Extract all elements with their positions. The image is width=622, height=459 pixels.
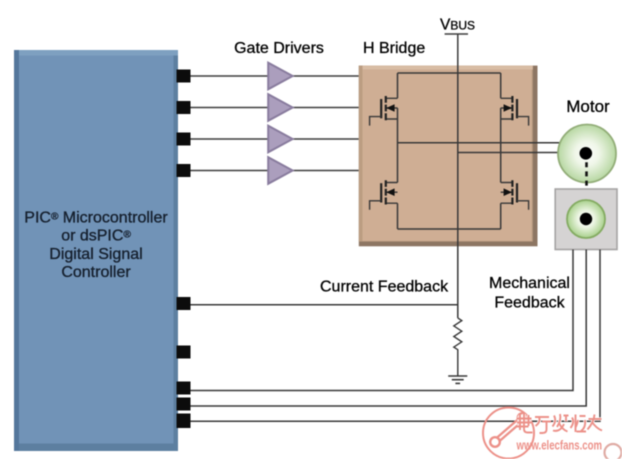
svg-text:or dsPIC®: or dsPIC® bbox=[61, 228, 131, 245]
svg-text:Gate Drivers: Gate Drivers bbox=[234, 40, 324, 57]
svg-text:www.elecfans.com: www.elecfans.com bbox=[516, 439, 602, 453]
svg-text:Motor: Motor bbox=[566, 97, 610, 116]
svg-text:H Bridge: H Bridge bbox=[363, 40, 425, 57]
svg-text:VBUS: VBUS bbox=[440, 17, 475, 34]
svg-text:PIC® Microcontroller: PIC® Microcontroller bbox=[24, 210, 168, 227]
svg-text:Controller: Controller bbox=[61, 264, 131, 281]
svg-text:Feedback: Feedback bbox=[494, 295, 565, 312]
svg-text:Digital Signal: Digital Signal bbox=[49, 246, 142, 263]
svg-text:Mechanical: Mechanical bbox=[489, 275, 570, 292]
svg-text:Current Feedback: Current Feedback bbox=[320, 279, 449, 296]
